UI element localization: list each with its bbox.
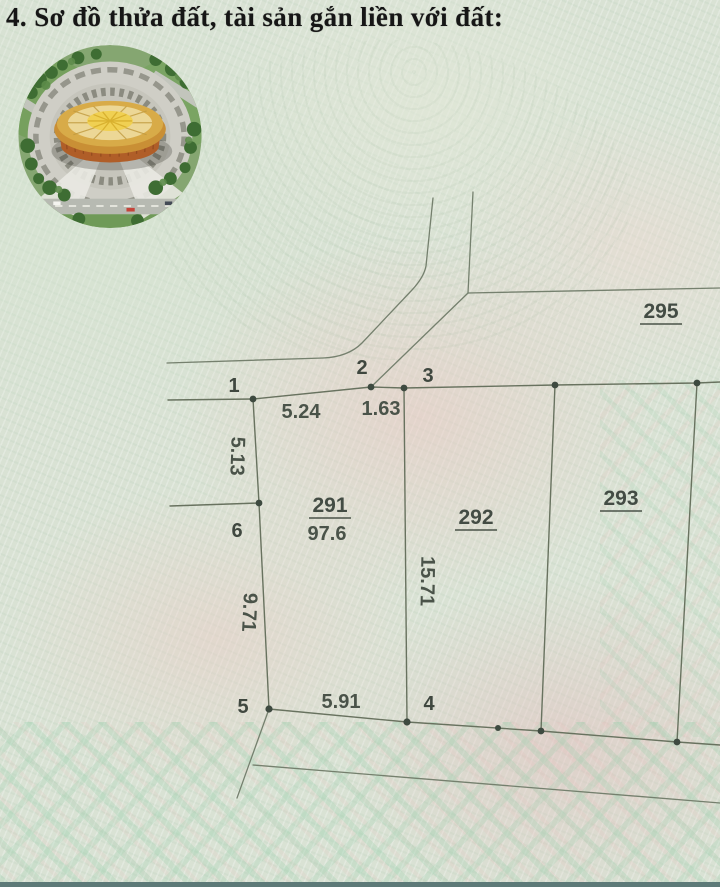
cadastral-sketch: 1 2 3 4 5 6 5.24 1.63 5.91 5.13 9.71 15.… [0, 0, 720, 887]
north-boundary [253, 382, 720, 399]
parcel-295-south-line [468, 288, 720, 293]
parcel-293-label: 293 [603, 487, 638, 510]
west-diagonal [237, 709, 269, 798]
dim-5-4: 5.91 [322, 691, 361, 713]
tick-point6 [170, 503, 259, 506]
tick-point1 [168, 399, 253, 400]
point-label-5: 5 [237, 696, 248, 718]
point-label-6: 6 [231, 520, 242, 542]
dim-3-4: 15.71 [416, 556, 439, 606]
photo-bottom-edge [0, 882, 720, 887]
dim-1-6: 5.13 [225, 436, 248, 476]
point-label-2: 2 [356, 357, 367, 379]
boundary-292-293 [541, 385, 555, 731]
road-edge-bottom [253, 765, 720, 803]
road-edge-to-point2 [371, 293, 468, 387]
dim-2-3: 1.63 [362, 398, 401, 420]
point-label-4: 4 [423, 693, 435, 715]
point-label-3: 3 [422, 365, 433, 387]
dim-1-2: 5.24 [282, 401, 322, 423]
road-edge-mid [468, 192, 473, 293]
south-boundary [269, 709, 720, 745]
west-boundary [253, 399, 269, 709]
road-edge-left [167, 198, 433, 363]
vertex-dots [250, 380, 701, 746]
boundary-293-east [677, 383, 697, 742]
point-label-1: 1 [228, 375, 239, 397]
dim-6-5: 9.71 [237, 592, 261, 632]
parcel-291-label: 291 [312, 494, 347, 517]
land-certificate-page: 4. Sơ đồ thửa đất, tài sản gắn liền với … [0, 0, 720, 887]
parcel-292-label: 292 [458, 506, 493, 529]
parcel-295-label: 295 [643, 300, 678, 323]
parcel-291-area: 97.6 [308, 523, 347, 545]
boundary-291-292 [404, 388, 407, 722]
